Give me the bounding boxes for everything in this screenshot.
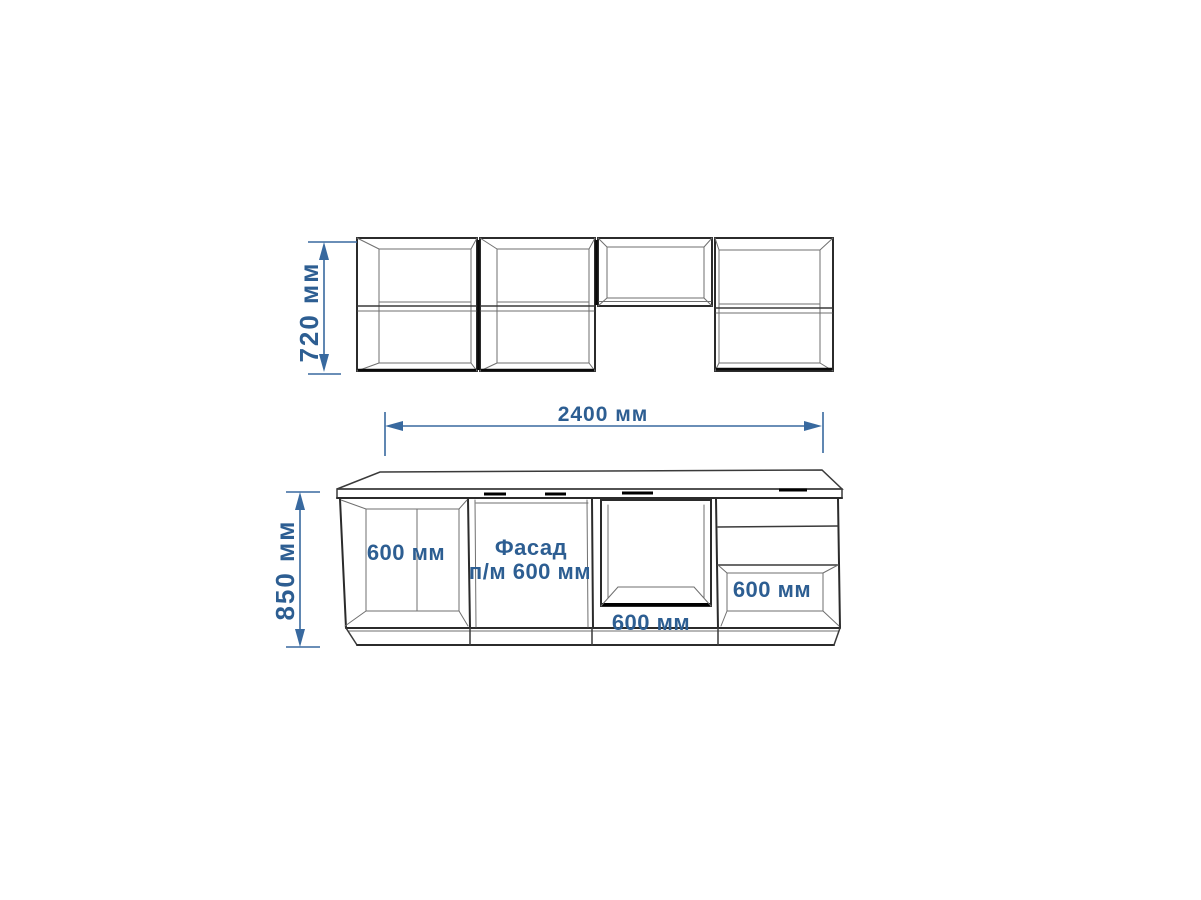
dimension-720: 720 мм bbox=[294, 242, 357, 374]
dimension-850: 850 мм bbox=[270, 492, 320, 647]
wall-cabinet-4 bbox=[715, 238, 833, 371]
base-cabinet-3-oven-niche bbox=[601, 500, 711, 606]
dim-2400-label: 2400 мм bbox=[558, 403, 649, 426]
base-cabinet-2-label-line2: п/м 600 мм bbox=[469, 559, 591, 584]
arrowhead-left-icon bbox=[385, 421, 403, 431]
arrowhead-down-icon bbox=[295, 629, 305, 647]
countertop bbox=[337, 470, 842, 498]
base-cabinet-2-label-line1: Фасад bbox=[495, 535, 567, 560]
base-cabinet-3-label: 600 мм bbox=[612, 610, 690, 635]
kitchen-drawing: 720 мм 2400 мм bbox=[0, 0, 1201, 900]
wall-cabinet-2 bbox=[479, 238, 596, 371]
wall-cabinet-run bbox=[357, 238, 833, 371]
dimension-2400: 2400 мм bbox=[385, 403, 823, 456]
kitchen-drawing-canvas: 720 мм 2400 мм bbox=[0, 0, 1201, 900]
wall-cabinet-3-hood bbox=[597, 238, 713, 306]
dim-850-label: 850 мм bbox=[270, 519, 300, 620]
plinth bbox=[346, 628, 840, 645]
dim-720-label: 720 мм bbox=[294, 261, 324, 362]
arrowhead-up-icon bbox=[319, 242, 329, 260]
base-cabinet-labels: 600 мм Фасад п/м 600 мм 600 мм 600 мм bbox=[367, 535, 811, 635]
base-cabinet-1-label: 600 мм bbox=[367, 540, 445, 565]
base-cabinet-4-drawers bbox=[718, 526, 839, 626]
base-cabinet-4-label: 600 мм bbox=[733, 577, 811, 602]
arrowhead-up-icon bbox=[295, 492, 305, 510]
arrowhead-right-icon bbox=[804, 421, 822, 431]
wall-cabinet-1 bbox=[357, 238, 477, 371]
